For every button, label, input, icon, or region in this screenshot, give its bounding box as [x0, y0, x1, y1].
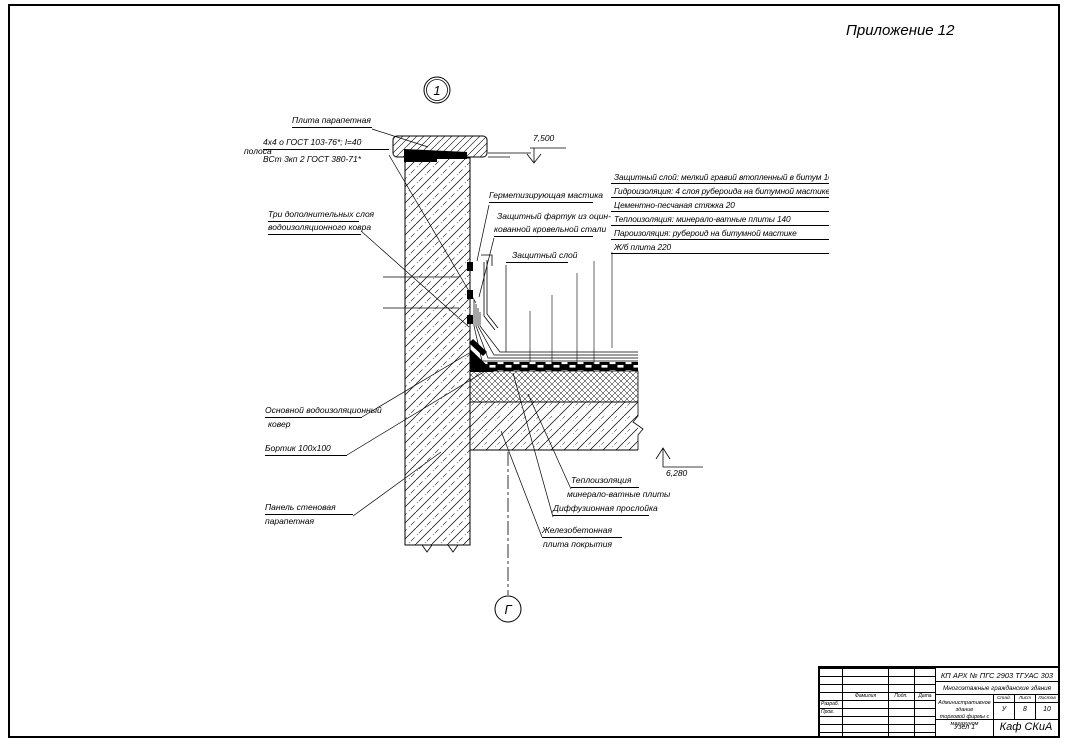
row-checked: Пров. — [821, 709, 841, 715]
column-signature: Подп. — [889, 693, 913, 699]
callout-curb: Бортик 100х100 — [265, 444, 347, 456]
document-code: КП АРХ № ПГС 2903 ТГУАС 303 — [936, 668, 1058, 682]
roof-layers-table: Защитный слой: мелкий гравий втопленный … — [611, 170, 829, 254]
roof-layer-row: Цементно-песчаная стяжка 20 — [611, 198, 829, 212]
sheets-value: 10 — [1036, 703, 1058, 719]
sheet-cell: Лист 8 — [1015, 695, 1036, 720]
callout-parapet-slab: Плита парапетная — [292, 116, 372, 128]
title-block-signature-grid: Фамилия Подп. Дата Разраб. Пров. — [820, 668, 936, 736]
roof-layer-row: Ж/б плита 220 — [611, 240, 829, 254]
callout-apron-line1: Защитный фартук из оцин- — [497, 212, 611, 222]
callout-main-carpet-line1: Основной водоизоляционный — [265, 406, 362, 418]
waterproofing-band — [470, 362, 638, 371]
sheet-value: 8 — [1015, 703, 1035, 719]
callout-insulation-line1: Теплоизоляция — [571, 476, 639, 488]
stage-cell: Стад. У — [994, 695, 1015, 720]
callout-strip-spec-denominator: ВСт 3кп 2 ГОСТ 380-71* — [263, 155, 361, 165]
roof-layer-row: Гидроизоляция: 4 слоя рубероида на битум… — [611, 184, 829, 198]
protective-apron — [467, 255, 498, 330]
column-surname: Фамилия — [844, 693, 887, 699]
node-marker: 1 — [424, 77, 450, 103]
object-name: Административное здание торговой фирмы с… — [936, 695, 994, 720]
roof-layer-row: Пароизоляция: рубероид на битумной масти… — [611, 226, 829, 240]
row-developed: Разраб. — [821, 701, 841, 707]
sheets-label: Листов — [1036, 695, 1058, 703]
parapet-detail-drawing: 1 — [0, 0, 1070, 745]
callout-extra-layers-line1: Три дополнительных слоя — [268, 210, 359, 222]
sheet-label: Лист — [1015, 695, 1035, 703]
column-date: Дата — [915, 693, 935, 699]
break-line — [422, 545, 458, 552]
callout-sealing-mastic: Герметизирующая мастика — [489, 191, 593, 203]
stage-label: Стад. — [994, 695, 1014, 703]
title-block-info: КП АРХ № ПГС 2903 ТГУАС 303 Многоэтажные… — [936, 668, 1058, 736]
stage-value: У — [994, 703, 1014, 719]
object-name-line1: Административное здание — [936, 700, 993, 714]
project-theme: Многоэтажные гражданские здания — [936, 682, 1058, 695]
mineral-wool-insulation — [470, 371, 638, 402]
svg-text:Г: Г — [504, 602, 512, 617]
layer-table-leaders — [530, 252, 612, 366]
roof-layer-row: Защитный слой: мелкий гравий втопленный … — [611, 170, 829, 184]
elevation-mark-roof — [656, 448, 703, 467]
title-block: Фамилия Подп. Дата Разраб. Пров. КП АРХ … — [818, 666, 1060, 738]
callout-wall-panel-line2: парапетная — [265, 517, 314, 527]
callout-strip-spec-numerator: 4х4 о ГОСТ 103-76*; l=40 — [263, 138, 389, 150]
membrane-layers — [474, 300, 638, 361]
elevation-mark-top — [488, 148, 566, 163]
axis-marker: Г — [495, 452, 521, 622]
drawing-sheet: Приложение 12 — [0, 0, 1070, 745]
elevation-roof-value: 6,280 — [666, 469, 687, 479]
drawing-name: Узел 1 — [936, 720, 994, 736]
callout-rc-slab-line1: Железобетонная — [542, 526, 622, 538]
callout-extra-layers-line2: водоизоляционного ковра — [268, 223, 361, 235]
callout-main-carpet-line2: ковер — [268, 420, 290, 430]
department: Каф СКиА — [994, 720, 1058, 736]
callout-wall-panel-line1: Панель стеновая — [265, 503, 353, 515]
elevation-top-value: 7,500 — [533, 134, 554, 144]
callout-diffusion: Диффузионная прослойка — [553, 504, 649, 516]
parapet-wall-panel — [405, 158, 470, 552]
svg-text:1: 1 — [433, 83, 440, 98]
callout-protective-layer: Защитный слой — [506, 251, 568, 263]
callout-insulation-line2: минерало-ватные плиты — [567, 490, 670, 500]
roof-layer-row: Теплоизоляция: минерало-ватные плиты 140 — [611, 212, 829, 226]
sheets-cell: Листов 10 — [1036, 695, 1058, 720]
callout-rc-slab-line2: плита покрытия — [543, 540, 612, 550]
rc-roof-slab — [470, 402, 643, 450]
callout-apron-line2: кованной кровельной стали — [494, 225, 593, 237]
